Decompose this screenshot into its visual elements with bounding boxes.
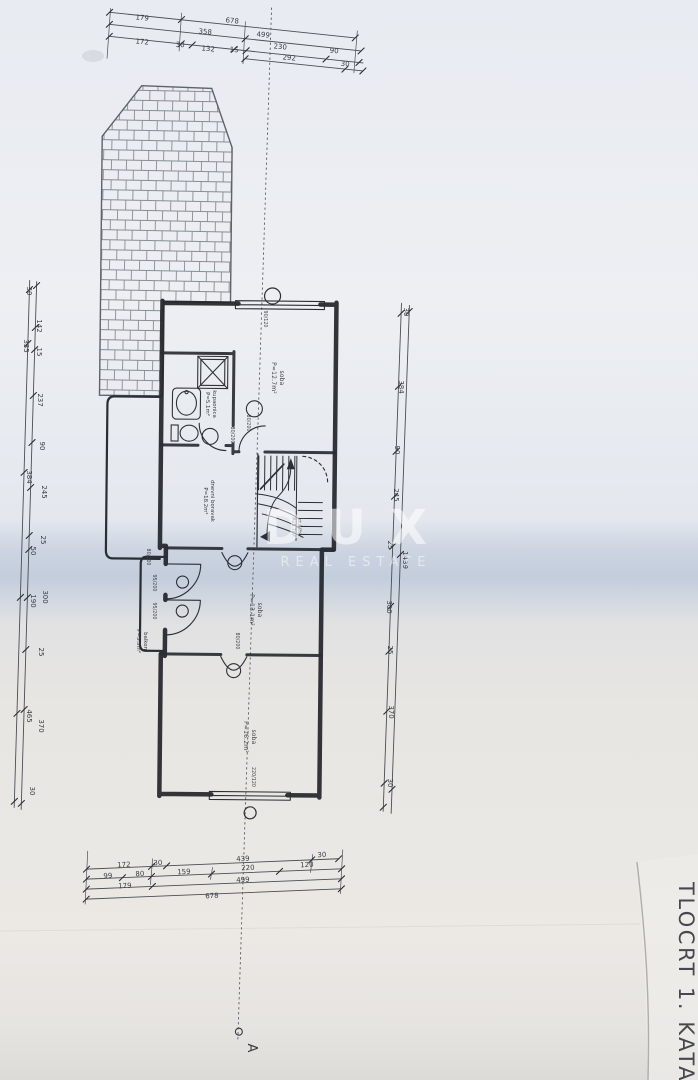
dim-label: 90 [393, 446, 401, 455]
dim-label: 499 [256, 30, 270, 39]
section-marker: A [244, 1044, 259, 1053]
dim-label: 25 [386, 646, 394, 655]
room-label-balkon: balkon [142, 632, 148, 650]
floor-plan-photo: 179 678 358 499 172 30 132 15 230 90 292… [0, 0, 698, 1080]
balcony-door-size-label: 95/200 [151, 603, 157, 620]
door-size-label: 80/200 [229, 427, 235, 444]
dim-label: 172 [117, 861, 131, 870]
dim-label: 50 [29, 547, 37, 556]
room-area-dnevni: P=18.2m² [202, 487, 209, 514]
room-area-balkon: P=5.3m² [135, 629, 142, 653]
dim-label: 30 [153, 859, 162, 867]
room-area-soba-top: P=12.7m² [270, 362, 277, 394]
dim-label: 220 [241, 864, 255, 873]
dim-label: 90 [329, 47, 339, 56]
dim-label: 179 [118, 882, 132, 891]
dim-label: 179 [135, 13, 149, 22]
watermark-tagline: REAL ESTATE [281, 555, 432, 570]
door-size-label: 80/200 [145, 549, 151, 566]
dim-label: 25 [39, 536, 47, 545]
dim-label: 120 [300, 861, 314, 870]
room-label-soba-top: soba [278, 370, 285, 385]
dim-label: 678 [205, 892, 219, 901]
dim-label: 142 [35, 319, 43, 332]
dim-label: 358 [198, 27, 212, 36]
room-label-soba-bottom: soba [250, 729, 257, 744]
dim-label: 30 [340, 60, 350, 69]
dim-label: 499 [236, 876, 250, 885]
dim-label: 25 [37, 648, 45, 657]
dim-label: 30 [175, 41, 185, 50]
dim-label: 678 [225, 16, 239, 25]
dim-label: 439 [236, 855, 250, 864]
room-label-dnevni: dnevni boravak [209, 480, 215, 523]
dim-label: 30 [28, 787, 36, 796]
dim-label: 335 [22, 339, 30, 352]
window-size-label: 220/120 [250, 767, 256, 787]
room-label-kupaonica: kupaonica [211, 390, 217, 418]
dim-label: 132 [201, 44, 215, 53]
dim-label: 230 [273, 42, 287, 51]
dim-label: 370 [387, 705, 395, 718]
dim-label: 30 [317, 851, 326, 859]
dim-label: 300 [41, 590, 49, 603]
room-label-soba-middle: soba [256, 602, 263, 617]
balcony-door-size-label: 95/200 [151, 575, 157, 592]
dim-label: 15 [35, 348, 43, 357]
dim-label: 90 [38, 442, 46, 451]
watermark: DUX REAL ESTATE [263, 500, 451, 570]
dim-label: 30 [402, 308, 410, 317]
corner-shadow [82, 50, 104, 62]
dim-label: 99 [103, 872, 112, 880]
dim-label: 384 [397, 380, 405, 394]
window-size-label: 90/120 [262, 311, 268, 328]
dim-label: 190 [29, 594, 37, 607]
dim-label: 80 [135, 870, 144, 878]
drawing-title: TLOCRT 1. KATA [674, 881, 698, 1080]
room-area-soba-middle: P=13.1m² [248, 594, 255, 626]
dim-label: 300 [385, 600, 393, 613]
room-area-soba-bottom: P=16.2m² [242, 721, 249, 753]
dim-label: 159 [177, 868, 191, 877]
watermark-brand: DUX [263, 500, 451, 556]
dim-label: 245 [40, 485, 48, 498]
dim-label: 30 [25, 287, 33, 296]
room-area-kupaonica: P=5.1m² [204, 392, 211, 416]
floor-plan-drawing: 179 678 358 499 172 30 132 15 230 90 292… [0, 0, 698, 1080]
dim-label: 384 [25, 470, 33, 484]
dim-label: 237 [36, 393, 44, 406]
dim-label: 292 [282, 53, 296, 62]
door-size-label: 80/200 [245, 415, 251, 432]
dim-label: 370 [37, 719, 45, 732]
door-size-label: 80/200 [234, 633, 240, 650]
dim-label: 465 [25, 709, 33, 722]
dim-label: 172 [135, 37, 149, 46]
dim-label: 30 [386, 779, 394, 788]
dim-label: 15 [229, 46, 239, 55]
